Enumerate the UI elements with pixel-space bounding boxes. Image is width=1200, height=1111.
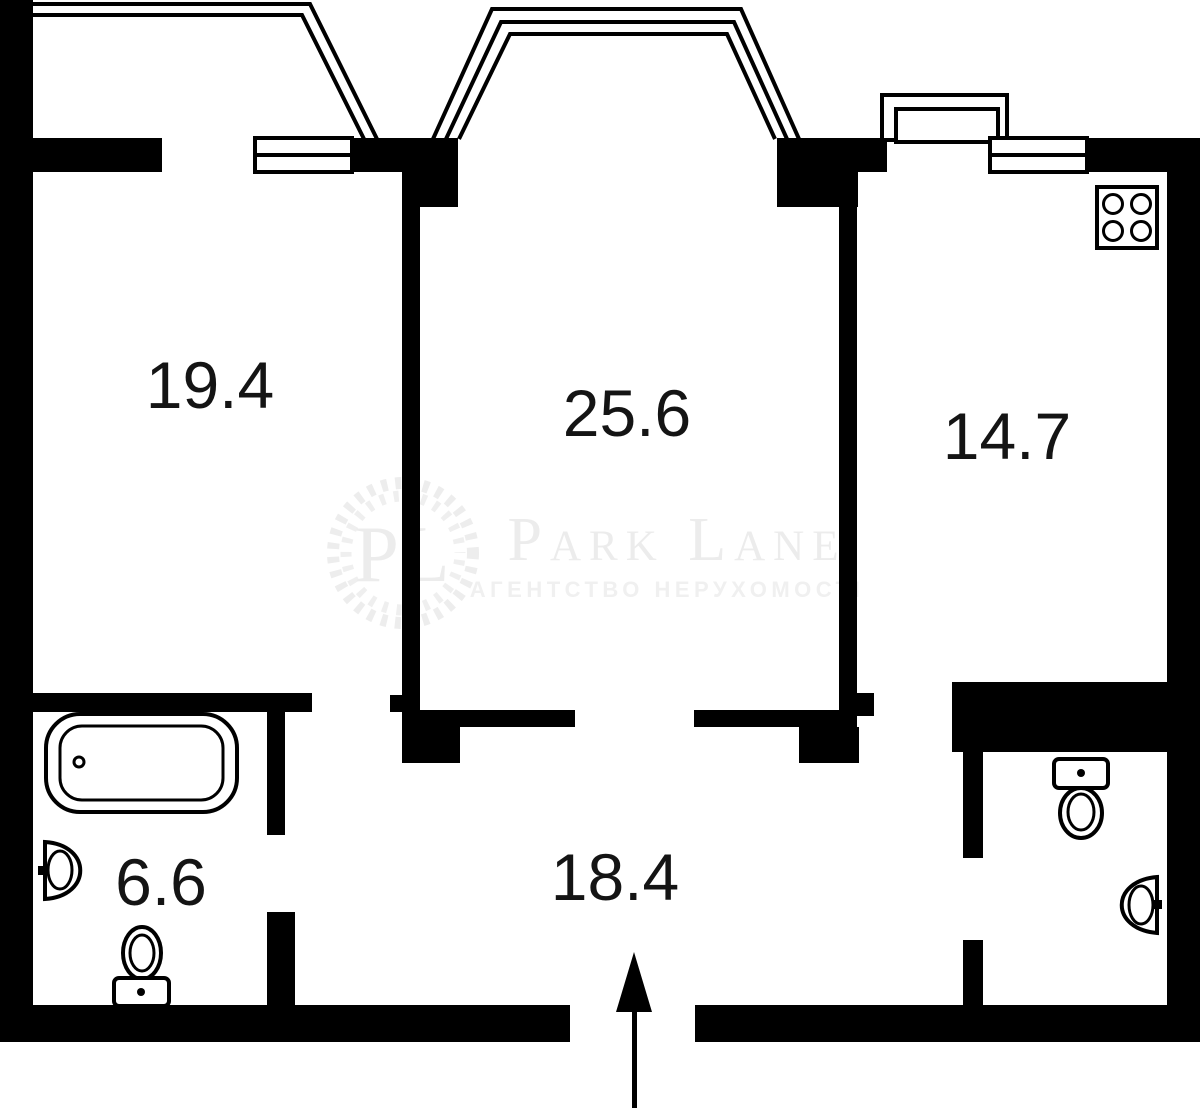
wall-left — [0, 0, 33, 1042]
window-icon — [990, 138, 1087, 172]
room-label-living-room: 19.4 — [146, 348, 274, 422]
room-label-kitchen: 14.7 — [943, 399, 1071, 473]
room-label-hallway: 18.4 — [551, 840, 679, 914]
window-icon — [255, 138, 352, 172]
bathroom-sink-icon — [38, 842, 80, 899]
stove-icon — [1097, 187, 1157, 248]
watermark-brand: Park Lane — [507, 506, 846, 574]
entry-arrow-icon — [616, 952, 652, 1108]
bathtub-icon — [46, 714, 237, 812]
room-label-bathroom: 6.6 — [115, 845, 207, 919]
wall-bottom-right — [695, 1005, 1200, 1042]
kitchen-balcony-bump-icon — [882, 95, 1007, 142]
watermark-tagline: АГЕНТСТВО НЕРУХОМОСТІ — [470, 577, 864, 602]
room-label-main-room: 25.6 — [563, 376, 691, 450]
balcony-icon — [33, 4, 377, 139]
bay-window-icon — [433, 9, 799, 139]
wc-toilet-icon — [1054, 759, 1108, 838]
floor-plan: PL Park Lane АГЕНТСТВО НЕРУХОМОСТІ — [0, 0, 1200, 1111]
bathroom-toilet-icon — [114, 927, 169, 1006]
wc-sink-icon — [1122, 877, 1162, 933]
wall-right — [1167, 138, 1200, 1042]
